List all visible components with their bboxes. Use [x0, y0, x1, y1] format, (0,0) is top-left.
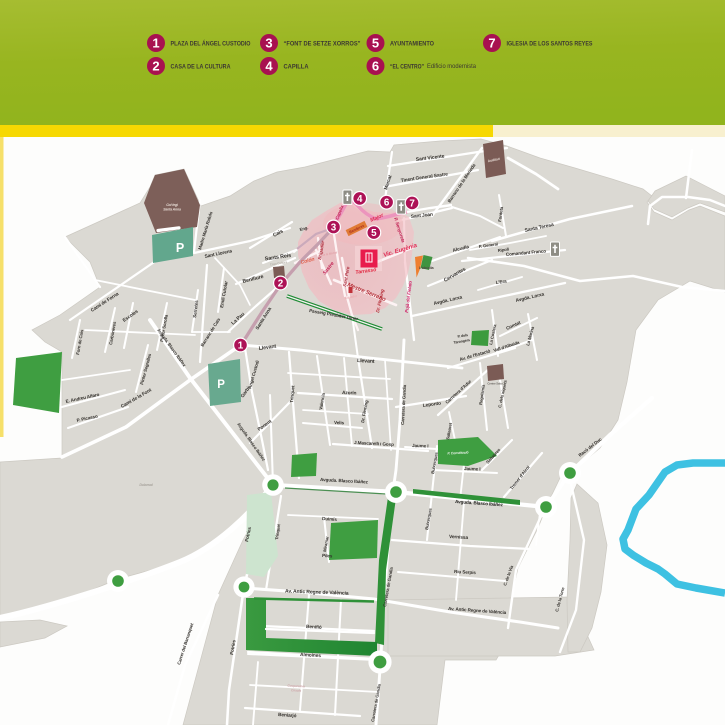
svg-text:IGLESIA DE LOS SANTOS REYES: IGLESIA DE LOS SANTOS REYES	[507, 40, 594, 47]
svg-text:Jaume I: Jaume I	[412, 443, 429, 449]
svg-text:1: 1	[238, 340, 244, 351]
svg-text:P: P	[217, 379, 225, 391]
svg-text:Col·legi: Col·legi	[166, 203, 178, 207]
svg-text:Centre Salut: Centre Salut	[487, 382, 502, 386]
svg-text:4: 4	[265, 59, 273, 74]
svg-text:Santa Anna: Santa Anna	[163, 208, 181, 212]
svg-text:“FONT DE SETZE XORROS”: “FONT DE SETZE XORROS”	[284, 40, 361, 47]
svg-text:5: 5	[372, 36, 379, 51]
svg-text:Almoines: Almoines	[300, 652, 322, 659]
svg-text:1: 1	[152, 36, 159, 51]
svg-text:Jaume I: Jaume I	[464, 466, 481, 472]
svg-text:AYUNTAMIENTO: AYUNTAMIENTO	[390, 40, 434, 47]
svg-text:7: 7	[409, 198, 415, 209]
svg-text:Vernissa: Vernissa	[449, 534, 469, 541]
svg-text:5: 5	[371, 228, 377, 239]
svg-text:Duimís: Duimís	[322, 516, 338, 522]
svg-text:4: 4	[357, 194, 363, 205]
svg-text:“EL CENTRO”: “EL CENTRO”	[390, 63, 424, 70]
svg-text:Benifió: Benifió	[306, 624, 322, 631]
svg-text:Crisols: Crisols	[291, 688, 302, 693]
svg-text:3: 3	[265, 36, 272, 51]
svg-text:6: 6	[372, 59, 379, 74]
svg-text:7: 7	[488, 36, 495, 51]
svg-text:Azorín: Azorín	[342, 390, 357, 397]
svg-text:Piles: Piles	[322, 553, 333, 559]
svg-text:CAPILLA: CAPILLA	[284, 63, 309, 70]
svg-text:Velis: Velis	[334, 420, 345, 425]
svg-text:6: 6	[384, 198, 390, 209]
svg-text:3: 3	[331, 222, 337, 233]
svg-text:2: 2	[152, 59, 159, 74]
svg-text:Dularsal: Dularsal	[139, 483, 153, 487]
svg-text:Llevant: Llevant	[357, 358, 375, 365]
svg-text:P: P	[176, 241, 184, 255]
svg-text:PLAZA DEL ÁNGEL CUSTODIO: PLAZA DEL ÁNGEL CUSTODIO	[171, 38, 251, 47]
svg-text:L'alcúdia: L'alcúdia	[419, 266, 435, 270]
svg-text:Edificio modernista: Edificio modernista	[427, 64, 477, 70]
svg-text:CASA DE LA CULTURA: CASA DE LA CULTURA	[171, 63, 231, 70]
svg-text:2: 2	[278, 278, 284, 289]
